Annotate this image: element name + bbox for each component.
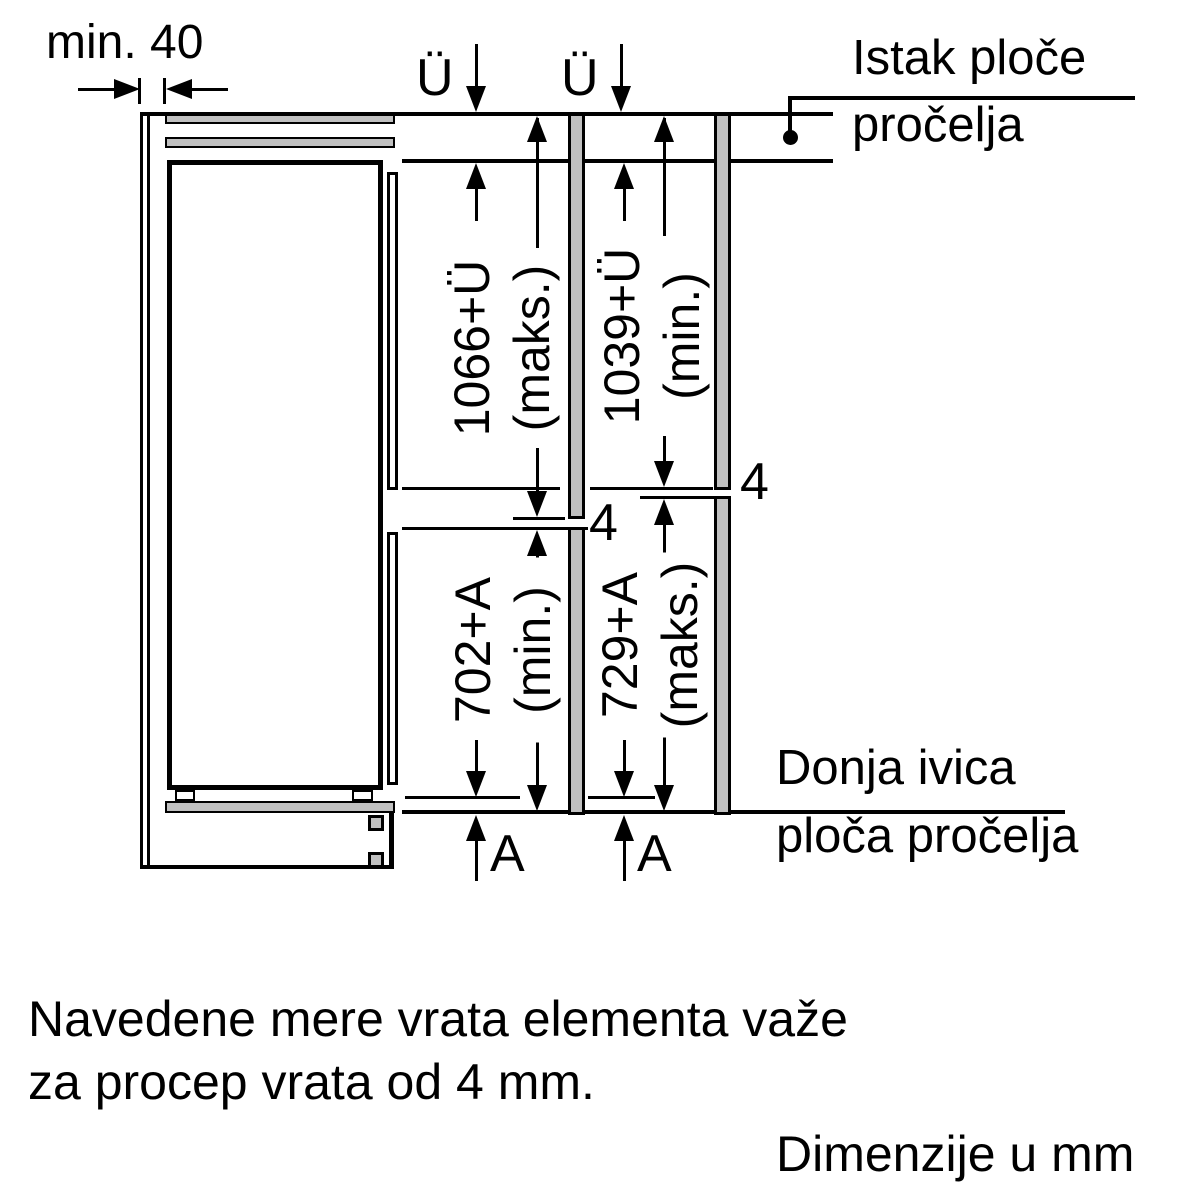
arrow-up-icon bbox=[654, 499, 674, 525]
dim-qualifier: (maks.) bbox=[502, 248, 562, 448]
arrow-up-icon bbox=[527, 530, 547, 556]
cabinet-front-edge bbox=[389, 812, 394, 868]
cabinet-bottom-line bbox=[140, 865, 394, 869]
callout-leader-dot bbox=[783, 130, 798, 145]
dim-qualifier: (maks.) bbox=[650, 553, 710, 738]
cabinet-top-strip-2 bbox=[165, 137, 395, 148]
offset-arrow-shaft-right bbox=[623, 740, 626, 773]
mount-block-2 bbox=[368, 852, 384, 868]
dim-value: 702+A bbox=[443, 558, 503, 743]
arrow-up-icon bbox=[614, 163, 634, 189]
arrow-down-icon bbox=[614, 771, 634, 797]
arrow-down-icon bbox=[654, 461, 674, 487]
note-line1: Navedene mere vrata elementa važe bbox=[28, 994, 848, 1044]
min-gap-arrow-shaft-right bbox=[192, 88, 228, 91]
offset-label-left: A bbox=[490, 828, 525, 880]
arrow-down-icon bbox=[527, 785, 547, 811]
left-gap-bottom-line bbox=[402, 527, 588, 530]
overhang-label-right: Ü bbox=[561, 52, 599, 104]
appliance-door-edge-upper bbox=[387, 172, 398, 490]
min-gap-arrow-shaft-left bbox=[78, 88, 116, 91]
appliance-foot-right bbox=[352, 790, 373, 801]
installation-diagram: min. 40 Ü Ü 1066+Ü (maks.) bbox=[0, 0, 1200, 1200]
dim-label-right-upper: 1039+Ü (min.) bbox=[592, 236, 712, 436]
gap-label-right: 4 bbox=[740, 456, 769, 508]
offset-counter-shaft-left bbox=[475, 839, 478, 881]
dim-label-left-lower: 702+A (min.) bbox=[443, 558, 563, 743]
min-gap-label: min. 40 bbox=[46, 19, 203, 67]
overhang-label-left: Ü bbox=[416, 52, 454, 104]
appliance-foot-left bbox=[175, 790, 195, 801]
overhang-arrow-shaft-left bbox=[475, 44, 478, 88]
arrow-down-icon bbox=[611, 86, 631, 112]
overhang-arrow-shaft-right bbox=[620, 44, 623, 88]
dim-value: 1066+Ü bbox=[442, 248, 502, 448]
dim-qualifier: (min.) bbox=[503, 558, 563, 743]
front-panel-1-lower bbox=[568, 527, 585, 815]
cabinet-side-wall-outer bbox=[140, 112, 143, 868]
cabinet-side-wall-inner bbox=[147, 116, 150, 866]
plinth-top-ref-line-left bbox=[405, 796, 520, 799]
appliance-body bbox=[167, 160, 383, 790]
front-panel-2-lower bbox=[714, 496, 731, 815]
bottom-edge-callout-line2: ploča pročelja bbox=[776, 812, 1078, 861]
arrow-down-icon bbox=[527, 491, 547, 517]
arrow-down-icon bbox=[654, 785, 674, 811]
right-gap-top-line-b bbox=[590, 487, 713, 490]
overhang-counter-shaft-left bbox=[475, 187, 478, 221]
arrow-up-icon bbox=[466, 163, 486, 189]
dim-value: 729+A bbox=[590, 553, 650, 738]
overhang-callout-line1: Istak ploče bbox=[852, 34, 1086, 83]
arrow-up-icon bbox=[466, 815, 486, 841]
offset-label-right: A bbox=[637, 828, 672, 880]
gap-label-left: 4 bbox=[589, 497, 618, 549]
overhang-callout-line2: pročelja bbox=[852, 101, 1024, 150]
bottom-edge-callout-line1: Donja ivica bbox=[776, 744, 1016, 793]
appliance-door-edge-lower bbox=[387, 532, 398, 785]
front-panel-1-upper bbox=[568, 113, 585, 519]
arrow-left-icon bbox=[166, 79, 192, 99]
plinth-panel bbox=[165, 801, 395, 813]
arrow-up-icon bbox=[614, 815, 634, 841]
min-gap-tick-left bbox=[138, 78, 141, 104]
arrow-right-icon bbox=[114, 79, 140, 99]
left-gap-top-line bbox=[513, 517, 565, 520]
offset-counter-shaft-right bbox=[623, 839, 626, 881]
arrow-down-icon bbox=[466, 771, 486, 797]
offset-arrow-shaft-left bbox=[475, 740, 478, 773]
dim-qualifier: (min.) bbox=[652, 236, 712, 436]
mount-block-1 bbox=[368, 815, 384, 831]
units-note: Dimenzije u mm bbox=[776, 1129, 1134, 1179]
dim-value: 1039+Ü bbox=[592, 236, 652, 436]
overhang-counter-shaft-right bbox=[623, 187, 626, 221]
note-line2: za procep vrata od 4 mm. bbox=[28, 1057, 595, 1107]
dim-label-right-lower: 729+A (maks.) bbox=[590, 553, 710, 738]
dim-label-left-upper: 1066+Ü (maks.) bbox=[442, 248, 562, 448]
front-panel-2-upper bbox=[714, 113, 731, 490]
arrow-down-icon bbox=[466, 86, 486, 112]
